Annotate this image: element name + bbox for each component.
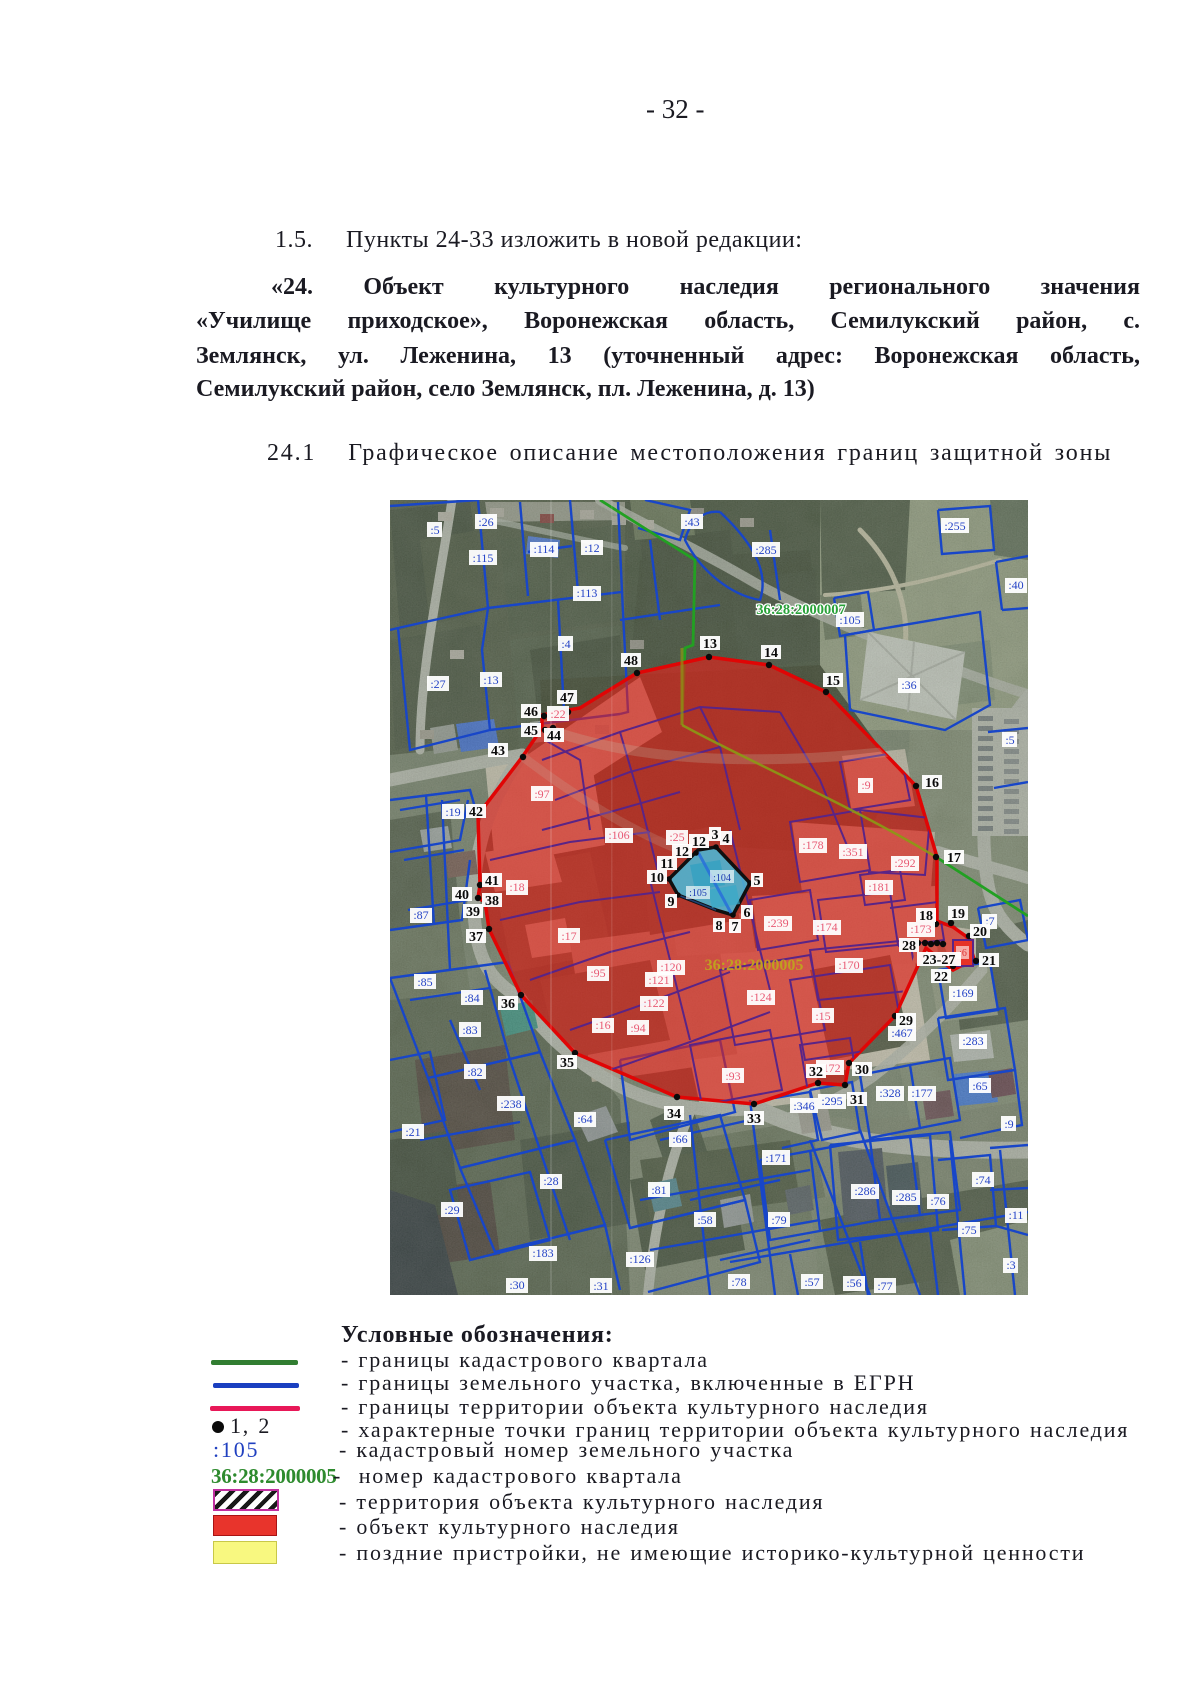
svg-text:23-27: 23-27 [923,953,956,968]
svg-text::25: :25 [669,830,684,844]
svg-text:43: 43 [491,744,505,759]
svg-text::94: :94 [630,1021,645,1035]
svg-text::124: :124 [750,990,771,1004]
svg-text::239: :239 [767,916,788,930]
svg-text:34: 34 [667,1107,681,1122]
svg-text::26: :26 [478,515,493,529]
svg-text::177: :177 [911,1086,932,1100]
svg-text:8: 8 [716,919,723,934]
svg-text:18: 18 [919,909,933,924]
svg-text:6: 6 [744,906,751,921]
svg-text:36: 36 [501,997,515,1012]
svg-text::36: :36 [901,678,916,692]
svg-text::78: :78 [731,1275,746,1289]
svg-text:36:28:2000005: 36:28:2000005 [705,957,804,974]
svg-text:31: 31 [850,1093,864,1108]
svg-text::106: :106 [608,828,629,842]
svg-text::105: :105 [689,888,707,899]
svg-text:40: 40 [455,888,469,903]
svg-text::183: :183 [532,1246,553,1260]
svg-text::75: :75 [961,1223,976,1237]
svg-text::16: :16 [595,1018,610,1032]
svg-text::5: :5 [430,523,439,537]
svg-text:5: 5 [754,874,761,889]
svg-text::76: :76 [930,1194,945,1208]
svg-text::65: :65 [972,1079,987,1093]
svg-text::18: :18 [509,880,524,894]
svg-text:12: 12 [675,845,689,860]
svg-text::120: :120 [660,960,681,974]
svg-text:42: 42 [469,805,483,820]
svg-text::115: :115 [473,551,494,565]
svg-text::3: :3 [1006,1258,1015,1272]
svg-text:3: 3 [712,828,719,843]
svg-text:17: 17 [947,851,961,866]
svg-text::81: :81 [651,1183,666,1197]
svg-text::171: :171 [765,1151,786,1165]
svg-text:32: 32 [809,1065,823,1080]
svg-text::85: :85 [417,975,432,989]
svg-text::285: :285 [755,543,776,557]
svg-text:29: 29 [899,1014,913,1029]
svg-text::173: :173 [910,922,931,936]
svg-text:36:28:2000007: 36:28:2000007 [756,602,845,618]
svg-text::15: :15 [815,1009,830,1023]
svg-text::17: :17 [561,929,576,943]
svg-text:48: 48 [624,654,638,669]
svg-text::56: :56 [846,1276,861,1290]
svg-text::328: :328 [879,1086,900,1100]
svg-text:35: 35 [560,1056,574,1071]
svg-text::87: :87 [413,908,428,922]
svg-text::43: :43 [684,515,699,529]
svg-text::40: :40 [1008,578,1023,592]
svg-text:41: 41 [485,874,499,889]
svg-text::285: :285 [895,1190,916,1204]
svg-text::21: :21 [405,1125,420,1139]
svg-text:12: 12 [692,835,706,850]
svg-text:21: 21 [982,954,996,969]
svg-text:16: 16 [925,776,939,791]
svg-text:10: 10 [650,871,664,886]
svg-text::181: :181 [868,880,889,894]
svg-text::66: :66 [672,1132,687,1146]
svg-text::11: :11 [1009,1208,1024,1222]
svg-text:22: 22 [934,970,948,985]
svg-text::77: :77 [877,1279,892,1293]
svg-text::79: :79 [771,1213,786,1227]
svg-text::64: :64 [577,1112,592,1126]
svg-text::28: :28 [543,1174,558,1188]
svg-text:39: 39 [466,905,480,920]
svg-text::93: :93 [725,1069,740,1083]
svg-text::113: :113 [577,586,598,600]
svg-text:45: 45 [524,724,538,739]
svg-text::13: :13 [483,673,498,687]
svg-text::286: :286 [854,1184,875,1198]
svg-text::97: :97 [534,787,549,801]
svg-text:15: 15 [826,674,840,689]
svg-text::170: :170 [838,958,859,972]
svg-text:47: 47 [560,691,574,706]
svg-text::122: :122 [643,996,664,1010]
svg-text::9: :9 [861,778,870,792]
svg-text::114: :114 [534,542,555,556]
svg-text:38: 38 [485,894,499,909]
svg-text:44: 44 [547,729,561,744]
svg-text:37: 37 [469,930,483,945]
svg-text::283: :283 [962,1034,983,1048]
svg-text:4: 4 [723,832,730,847]
svg-text::31: :31 [593,1279,608,1293]
svg-text::4: :4 [561,637,570,651]
svg-text:46: 46 [524,705,538,720]
svg-text:9: 9 [668,895,675,910]
svg-text:20: 20 [973,925,987,940]
svg-text:7: 7 [732,920,739,935]
svg-text::351: :351 [842,845,863,859]
svg-text::74: :74 [975,1173,990,1187]
svg-text:11: 11 [660,857,673,872]
svg-text::174: :174 [816,920,837,934]
svg-text::5: :5 [1005,733,1014,747]
svg-text::346: :346 [793,1099,814,1113]
svg-text::238: :238 [500,1097,521,1111]
svg-text::83: :83 [462,1023,477,1037]
svg-text:13: 13 [703,637,717,652]
svg-text::104: :104 [713,873,731,884]
svg-text::30: :30 [509,1278,524,1292]
svg-text::57: :57 [804,1275,819,1289]
svg-text::84: :84 [464,991,479,1005]
svg-text::22: :22 [550,707,565,721]
svg-text::126: :126 [629,1252,650,1266]
svg-text::255: :255 [944,519,965,533]
svg-text::95: :95 [590,966,605,980]
svg-text:28: 28 [902,939,916,954]
svg-text::295: :295 [821,1094,842,1108]
svg-text::58: :58 [697,1213,712,1227]
svg-text::19: :19 [445,805,460,819]
svg-text::178: :178 [802,838,823,852]
svg-text:19: 19 [951,907,965,922]
svg-text::121: :121 [648,973,669,987]
svg-text:33: 33 [747,1112,761,1127]
svg-text::292: :292 [894,856,915,870]
svg-text::169: :169 [952,986,973,1000]
svg-text::29: :29 [444,1203,459,1217]
svg-text::82: :82 [467,1065,482,1079]
svg-text::12: :12 [584,541,599,555]
svg-text::9: :9 [1004,1117,1013,1131]
svg-text:14: 14 [764,646,778,661]
svg-text:30: 30 [855,1063,869,1078]
svg-text::27: :27 [430,677,445,691]
